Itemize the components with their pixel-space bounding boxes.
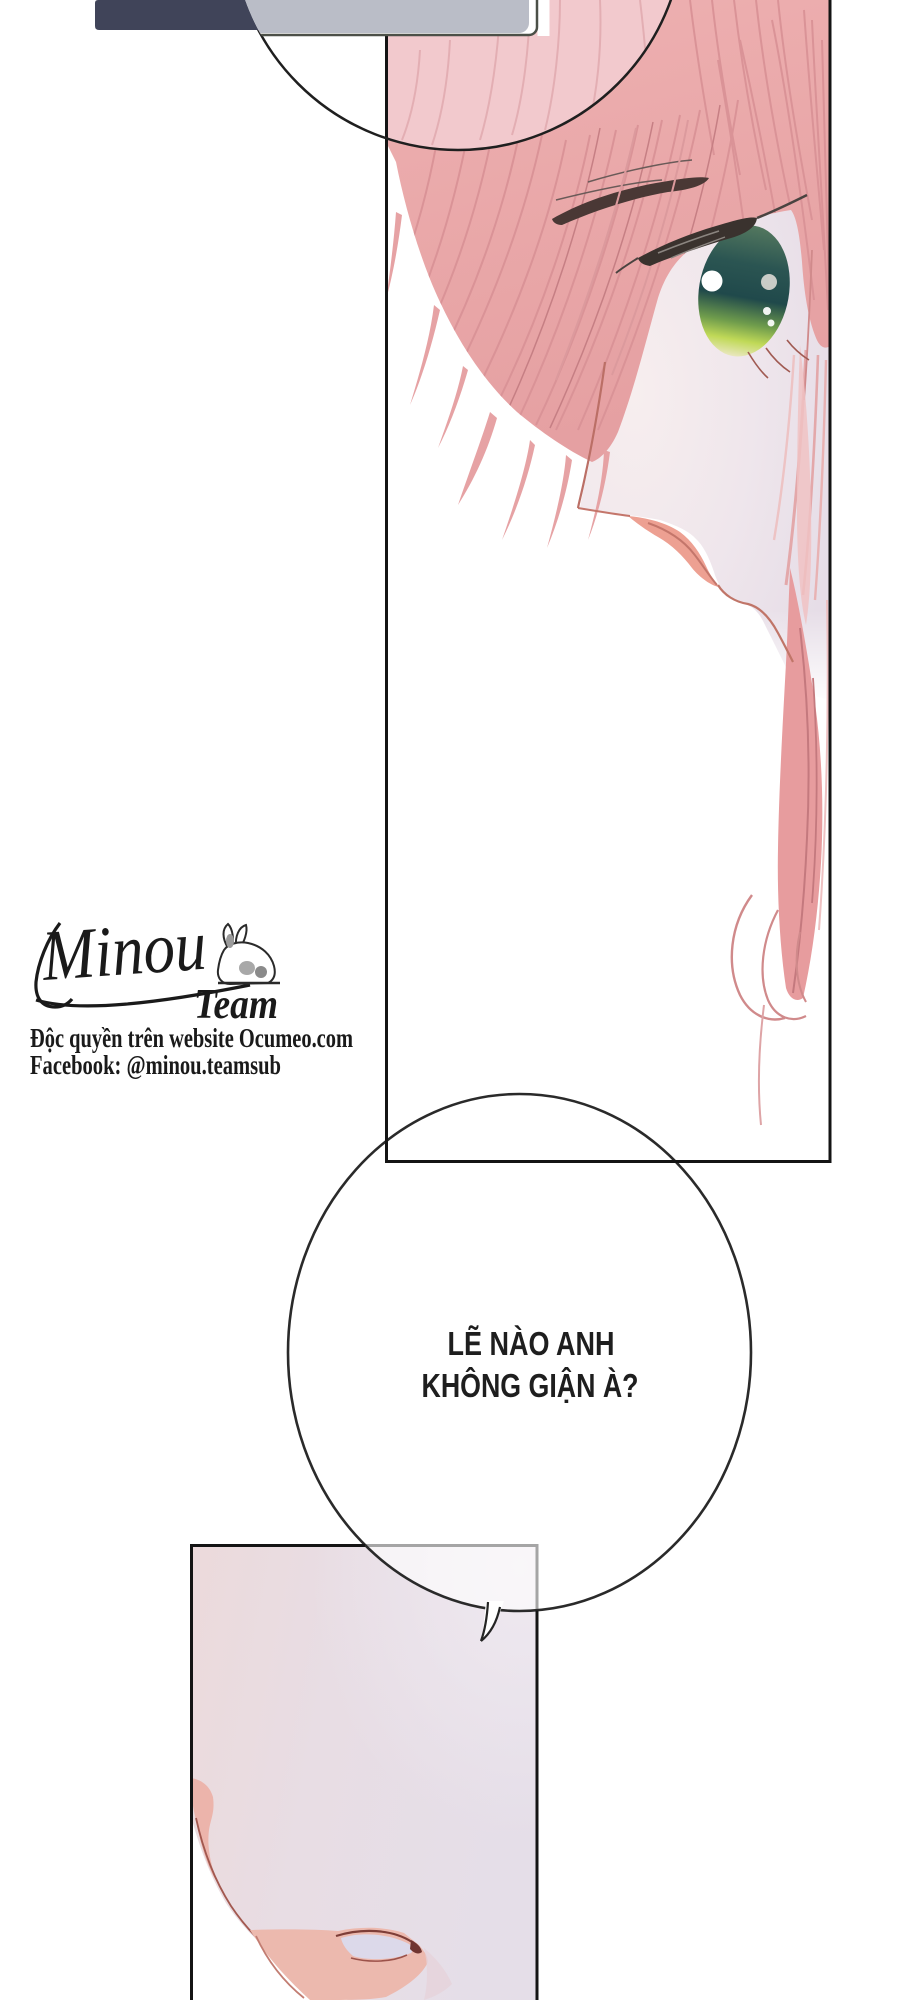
svg-text:Team: Team bbox=[194, 982, 278, 1028]
svg-text:Minou: Minou bbox=[39, 905, 209, 996]
svg-text:LẼ NÀO ANH: LẼ NÀO ANH bbox=[448, 1325, 615, 1363]
svg-text:Độc quyền trên website Ocumeo.: Độc quyền trên website Ocumeo.com bbox=[30, 1023, 353, 1053]
svg-text:KHÔNG GIẬN À?: KHÔNG GIẬN À? bbox=[422, 1366, 639, 1405]
svg-text:Facebook: @minou.teamsub: Facebook: @minou.teamsub bbox=[30, 1050, 281, 1080]
